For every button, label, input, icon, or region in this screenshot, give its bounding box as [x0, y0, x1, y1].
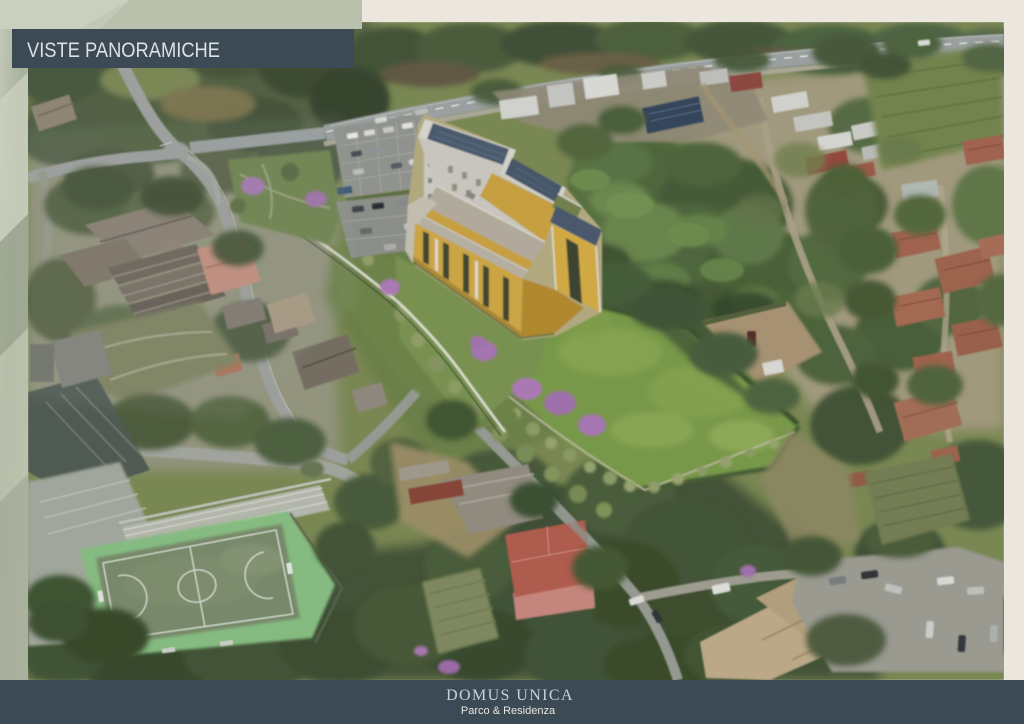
svg-text:Parco & Residenza: Parco & Residenza — [461, 705, 556, 717]
svg-text:VISTE PANORAMICHE: VISTE PANORAMICHE — [27, 39, 220, 62]
svg-text:DOMUS UNICA: DOMUS UNICA — [446, 687, 574, 704]
